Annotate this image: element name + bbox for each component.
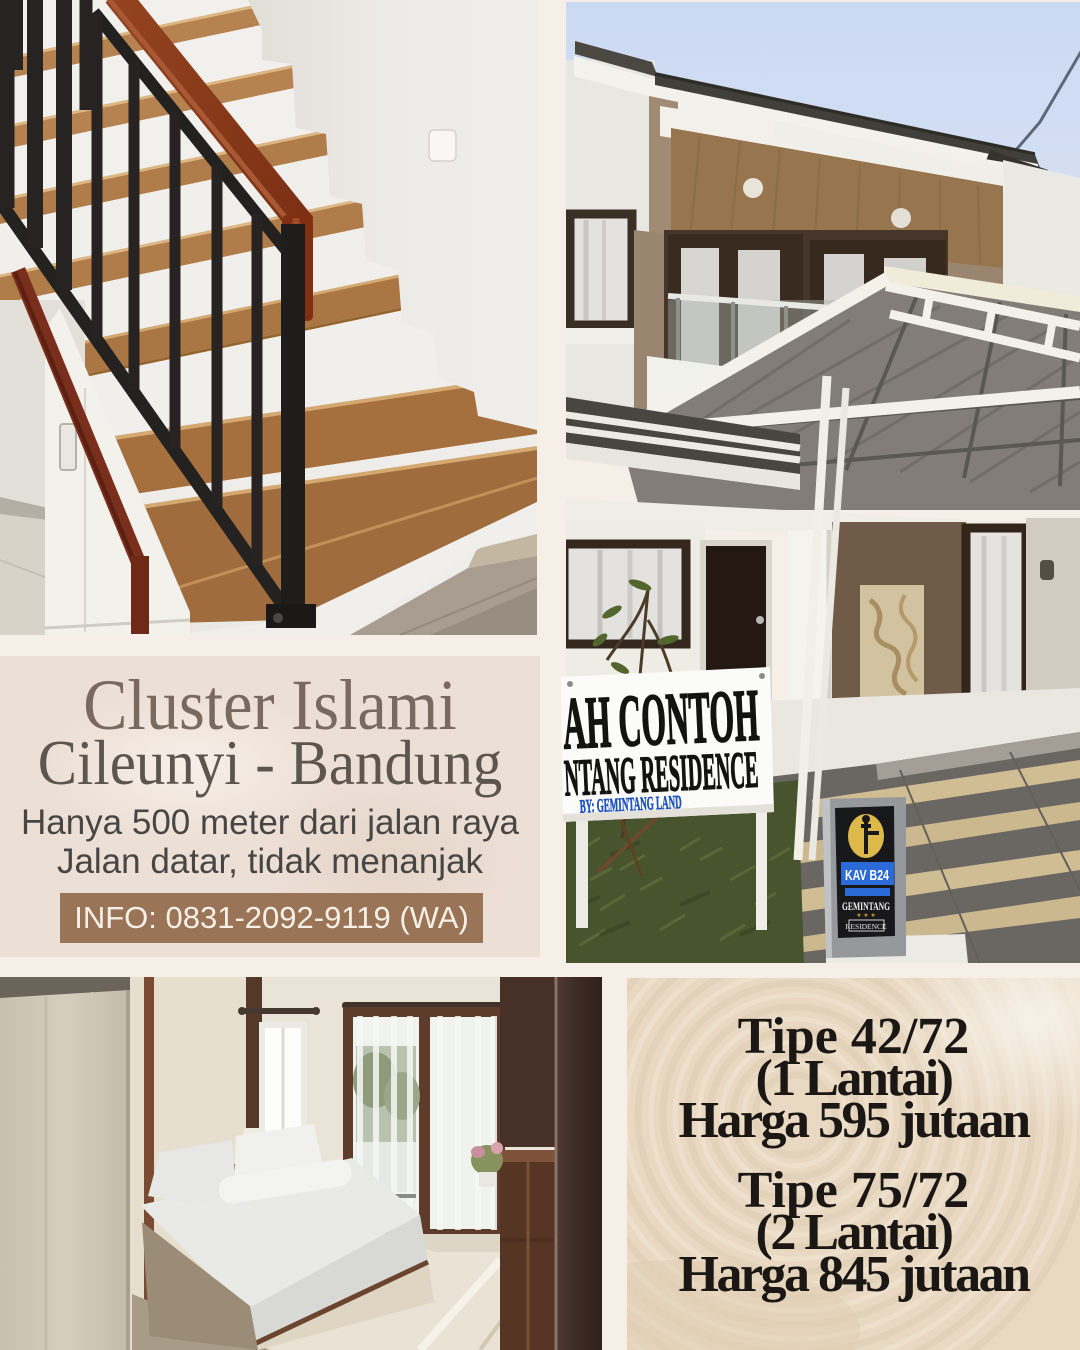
svg-text:GEMINTANG: GEMINTANG: [842, 899, 890, 913]
svg-text:RESIDENCE: RESIDENCE: [845, 922, 887, 931]
svg-text:KAV B24: KAV B24: [845, 867, 889, 884]
svg-text:★ ★ ★: ★ ★ ★: [856, 912, 875, 919]
